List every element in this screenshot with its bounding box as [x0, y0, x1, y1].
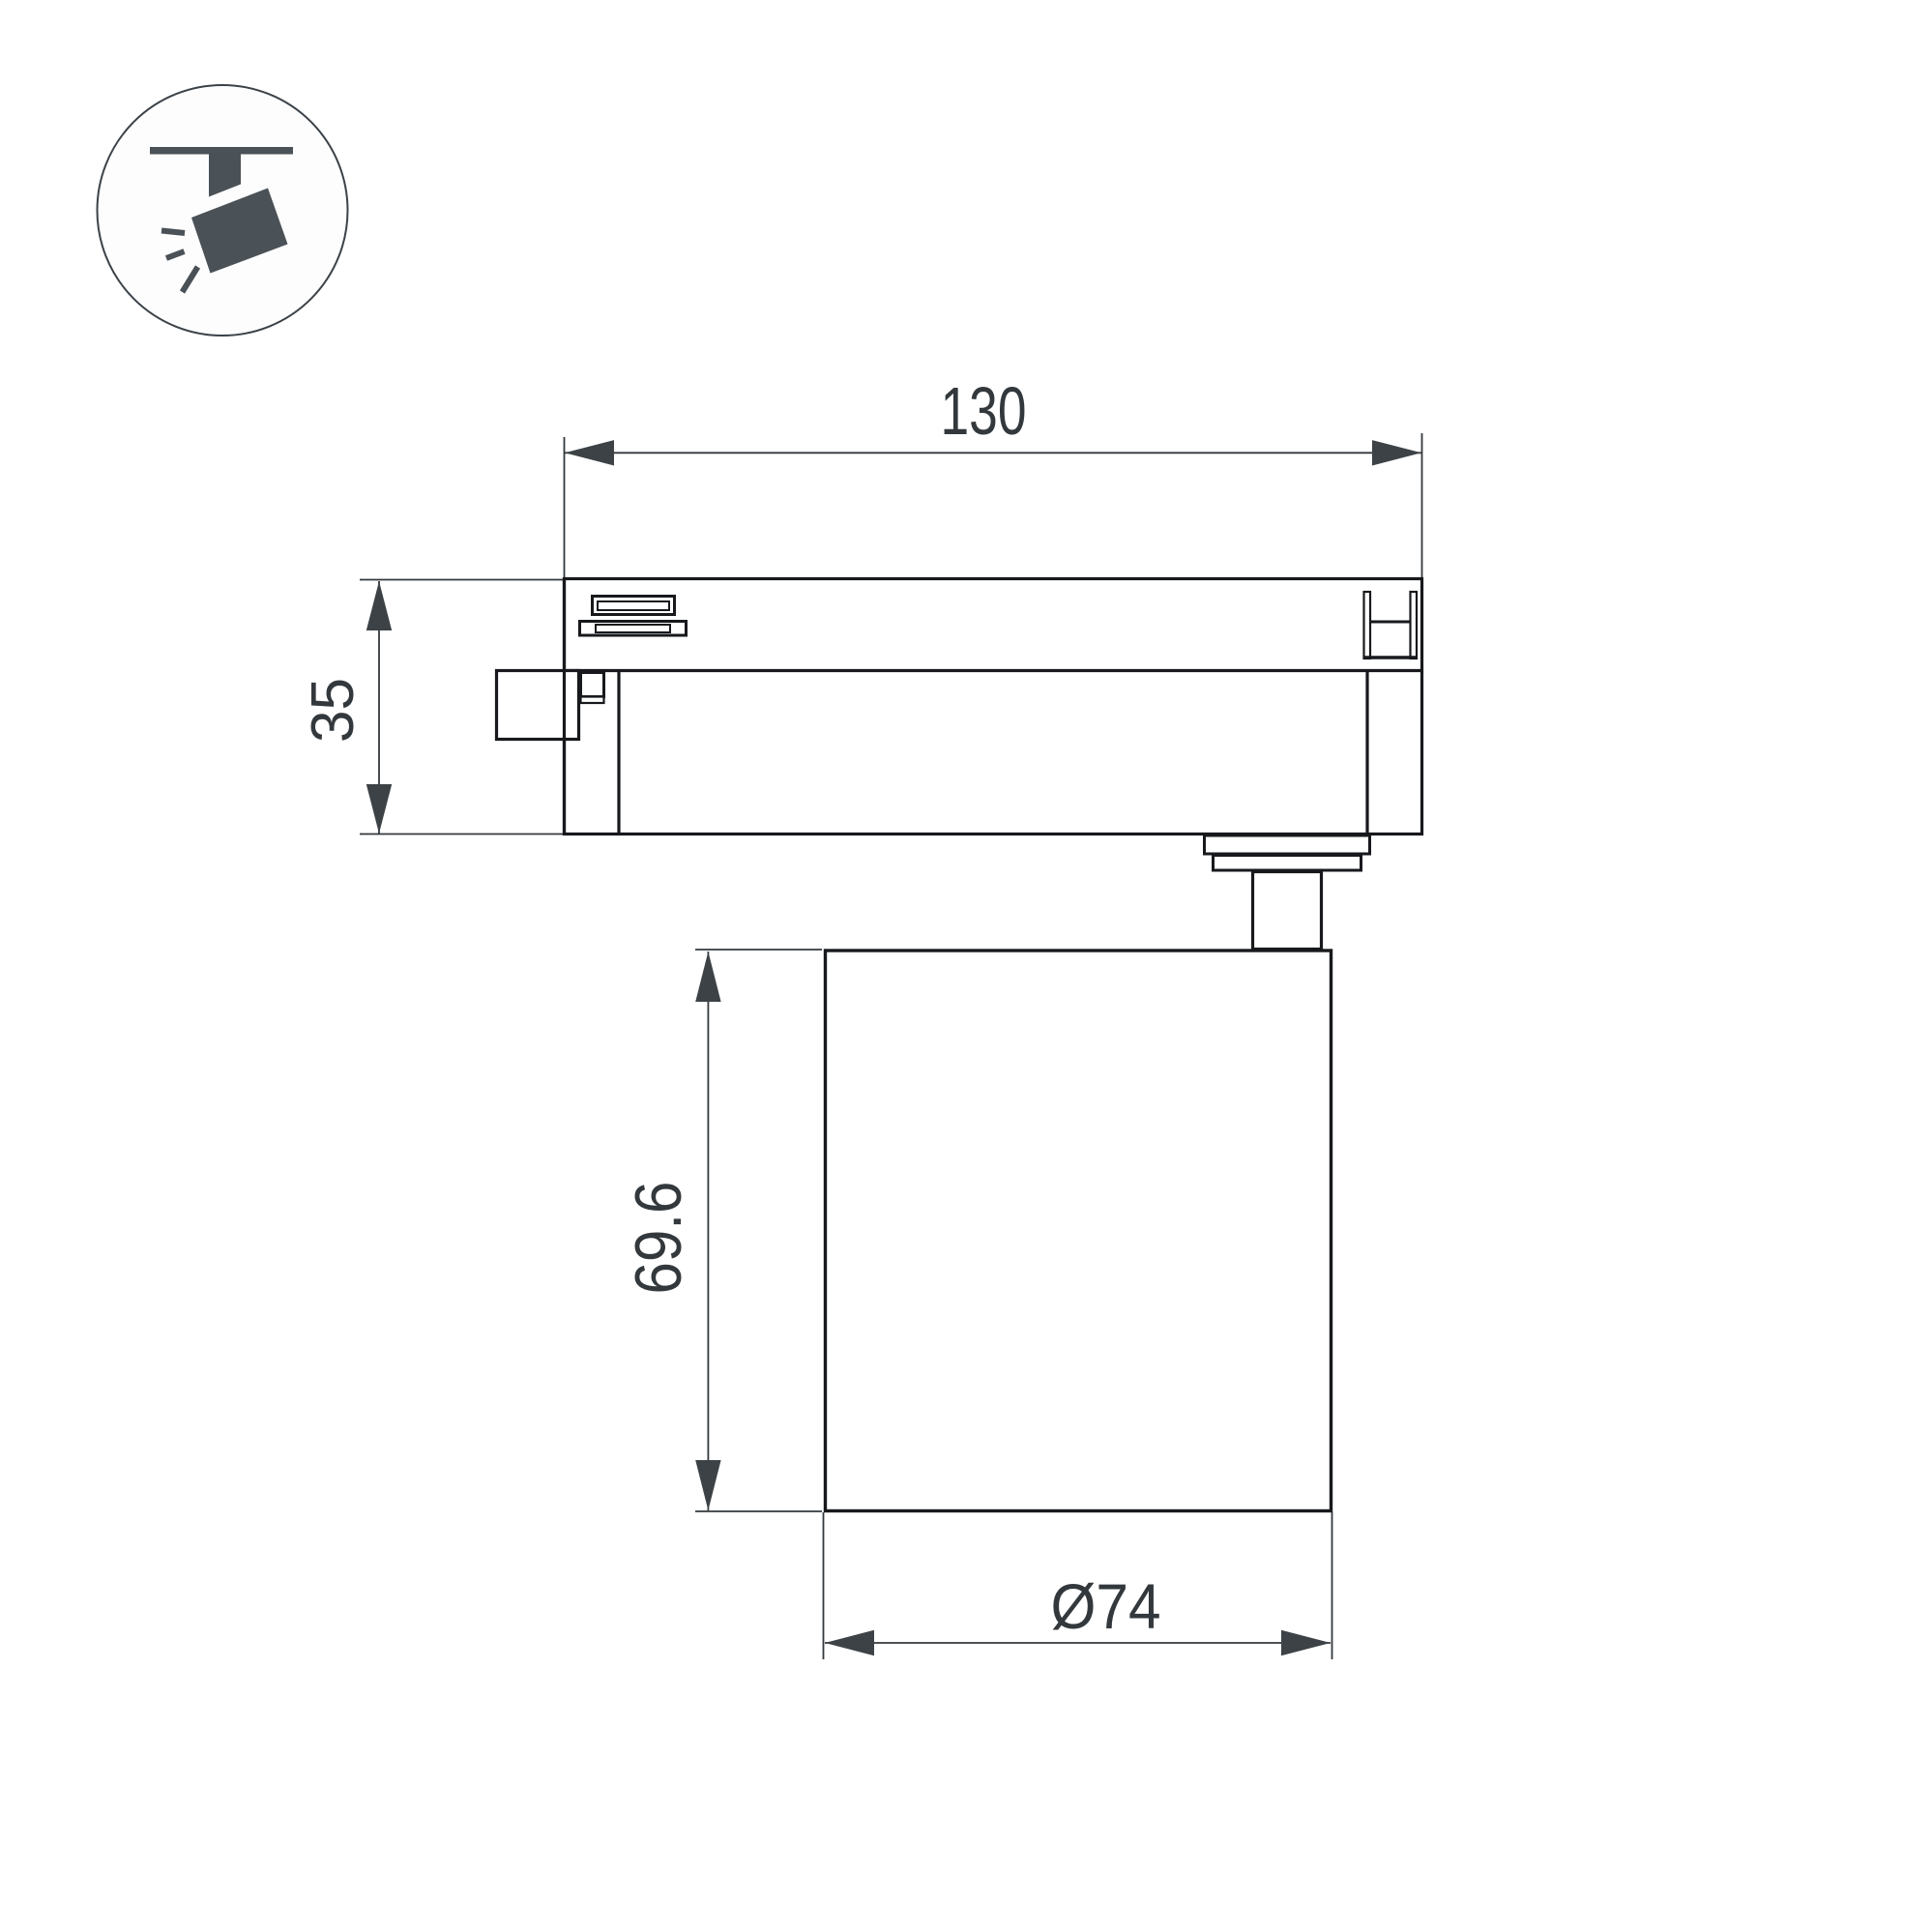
svg-text:69.6: 69.6: [622, 1182, 695, 1295]
svg-text:130: 130: [941, 373, 1027, 449]
svg-text:35: 35: [300, 678, 366, 743]
svg-text:Ø74: Ø74: [1051, 1570, 1161, 1642]
